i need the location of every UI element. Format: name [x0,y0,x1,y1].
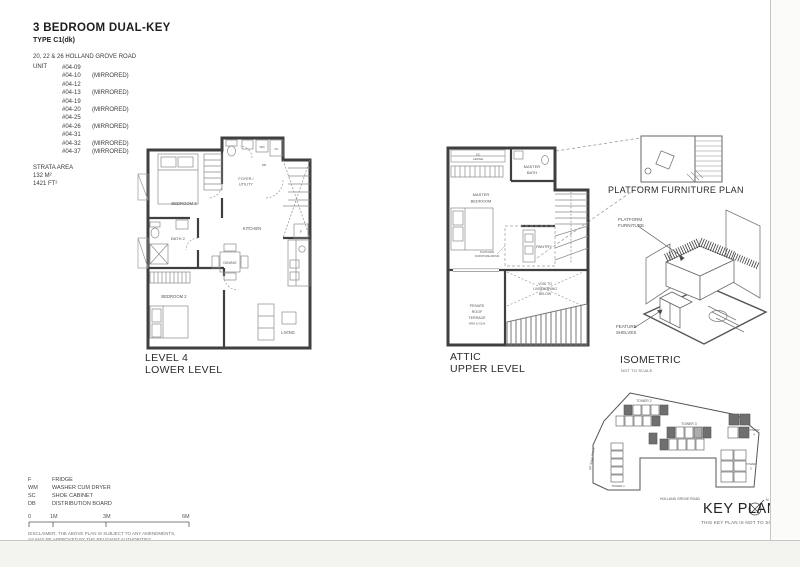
void-label-2: LIVING/DINING [533,287,557,291]
legend-row: SCSHOE CABINET [28,492,112,500]
iso-steps [708,306,744,332]
shoe-cabinet-marker: SC [275,147,279,151]
attic-room-labels: AC LEDGE MASTER BATH MASTER BEDROOM PANT… [468,153,557,326]
iso-shelves-label: FEATURE SHELVES [616,324,637,336]
page-bottom-margin [0,541,800,567]
tower5-label-1: TOWER [745,462,757,466]
washer-marker: WM [260,145,266,149]
bedroom3-label: BEDROOM 3 [171,201,197,206]
lower-level-caption: LEVEL 4 LOWER LEVEL [145,352,222,376]
iso-platform-box [666,246,734,300]
roof-hatch [507,304,587,345]
staircase [555,192,588,264]
db-marker: DB [262,163,266,167]
bedroom2-label: BEDROOM 2 [161,294,187,299]
iso-shelves [660,292,692,328]
master-bedroom-label-2: BEDROOM [471,199,492,204]
terrace-door [453,269,499,272]
legend-row: DBDISTRIBUTION BOARD [28,500,112,508]
platform-note-1: PLATFORM [480,250,494,254]
legend-row: WMWASHER CUM DRYER [28,484,112,492]
platform-furniture-detail [637,130,727,192]
note-leader [497,246,505,254]
master-bath-label-1: MASTER [524,164,541,169]
master-bath-fixtures [514,151,549,165]
key-plan-caption: KEY PLAN [703,501,778,517]
tower1-label: TOWER 1 [611,484,625,488]
platform-note-2: FURNITURE ABOVE [475,254,500,258]
living-label: LIVING [281,330,295,335]
master-bedroom-label-1: MASTER [473,192,490,197]
outer-walls [148,138,310,348]
platform-furniture-plan-caption: PLATFORM FURNITURE PLAN [608,185,744,195]
tower2-label: TOWER 2 [636,399,651,403]
void-label-3: BELOW [539,292,552,296]
isometric-note: NOT TO SCALE [621,368,653,373]
page-right-margin [771,0,800,567]
pantry-counter [523,230,535,262]
staircase [283,160,310,238]
bedroom2-furniture [150,272,190,338]
ac-ledge-label-2: LEDGE [473,157,483,161]
bath2-label: BATH 2 [171,236,185,241]
master-bedroom-furniture [451,166,503,250]
scale-line [29,522,189,527]
lower-room-labels: BEDROOM 3 FOYER / UTILITY KITCHEN BATH 2… [161,145,302,335]
terrace-label-3: TERRACE [468,316,486,320]
bath2-fixtures [150,220,188,264]
detail-stairs [687,141,722,182]
attic-caption: ATTIC UPPER LEVEL [450,351,525,375]
svg-text:1M: 1M [50,514,58,520]
legend-block: FFRIDGE WMWASHER CUM DRYER SCSHOE CABINE… [28,476,112,508]
page-edge-horizontal [0,540,800,541]
iso-platform-label: PLATFORM FURNITURE [618,217,644,229]
void-label-1: VOID TO [538,282,552,286]
svg-text:6M: 6M [182,514,190,520]
bedroom3-furniture [158,154,222,204]
floorplan-sheet: 3 BEDROOM DUAL-KEY TYPE C1(dk) 20, 22 & … [0,0,800,567]
terrace-area-label: AREA 10 SQ M [469,323,485,326]
isometric-caption: ISOMETRIC [620,354,681,366]
detail-walls [641,136,722,182]
pantry-label: PANTRY [536,244,552,249]
foyer-label-1: FOYER / [238,177,254,181]
road-label-bottom: HOLLAND GROVE ROAD [660,497,700,501]
foyer-label-2: UTILITY [239,183,254,187]
terrace-label-1: PRIVATE [470,304,485,308]
svg-text:0: 0 [28,514,31,520]
kitchen-label: KITCHEN [243,226,261,231]
dining-label: DINING [223,261,236,265]
detail-furniture [645,151,674,174]
svg-text:3M: 3M [103,514,111,520]
interior-walls [148,150,310,348]
scale-labels: 0 1M 3M 6M [28,514,190,520]
master-bath-label-2: BATH [527,170,537,175]
terrace-label-2: ROOF [472,310,483,314]
page-edge-vertical [770,0,771,541]
fridge-marker: F [300,230,303,234]
tower1-units [611,443,623,482]
scale-bar: 0 1M 3M 6M [26,511,201,529]
tower4-label-1: TOWER [748,428,760,432]
legend-row: FFRIDGE [28,476,112,484]
lower-level-floorplan: BEDROOM 3 FOYER / UTILITY KITCHEN BATH 2… [136,128,326,360]
tower3-label: TOWER 3 [681,422,696,426]
